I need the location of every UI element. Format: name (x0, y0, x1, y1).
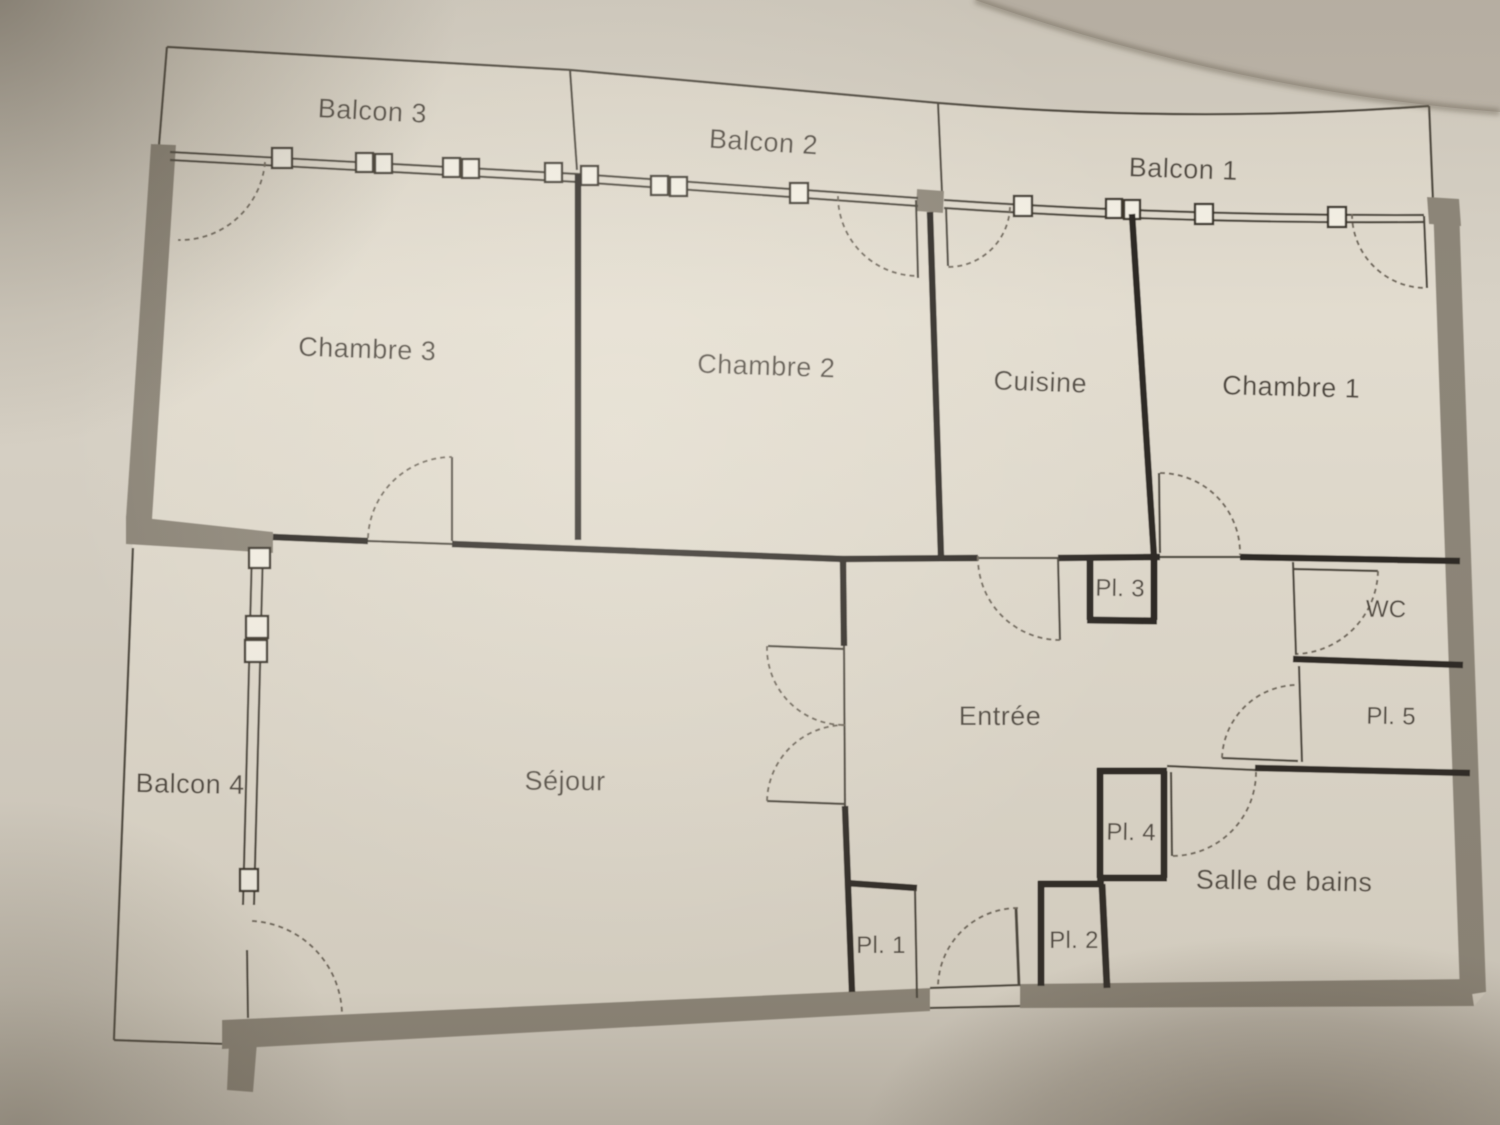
closet-label-pl-2: Pl. 2 (1049, 927, 1099, 954)
closet-label-pl-4: Pl. 4 (1106, 819, 1156, 847)
room-label-chambre-2: Chambre 2 (697, 349, 836, 384)
plan-drawing: Balcon 3 Balcon 2 Balcon 1 Balcon 4 Cham… (114, 47, 1486, 1092)
room-label-entree: Entrée (959, 701, 1042, 731)
room-label-wc: WC (1366, 596, 1407, 624)
room-label-sejour: Séjour (524, 766, 605, 797)
room-label-salle-de-bains: Salle de bains (1196, 864, 1373, 897)
room-label-balcon-1: Balcon 1 (1128, 152, 1238, 186)
room-label-chambre-3: Chambre 3 (298, 332, 437, 367)
closet-label-pl-3: Pl. 3 (1095, 575, 1145, 603)
floor-plan-photo: Balcon 3 Balcon 2 Balcon 1 Balcon 4 Cham… (0, 0, 1500, 1125)
closet-label-pl-5: Pl. 5 (1366, 703, 1416, 731)
room-label-chambre-1: Chambre 1 (1222, 370, 1361, 404)
room-label-cuisine: Cuisine (993, 365, 1088, 398)
room-label-balcon-3: Balcon 3 (317, 93, 427, 129)
room-label-balcon-4: Balcon 4 (135, 768, 245, 800)
floor-plan-svg: Balcon 3 Balcon 2 Balcon 1 Balcon 4 Cham… (0, 0, 1500, 1125)
closet-label-pl-1: Pl. 1 (856, 932, 906, 959)
